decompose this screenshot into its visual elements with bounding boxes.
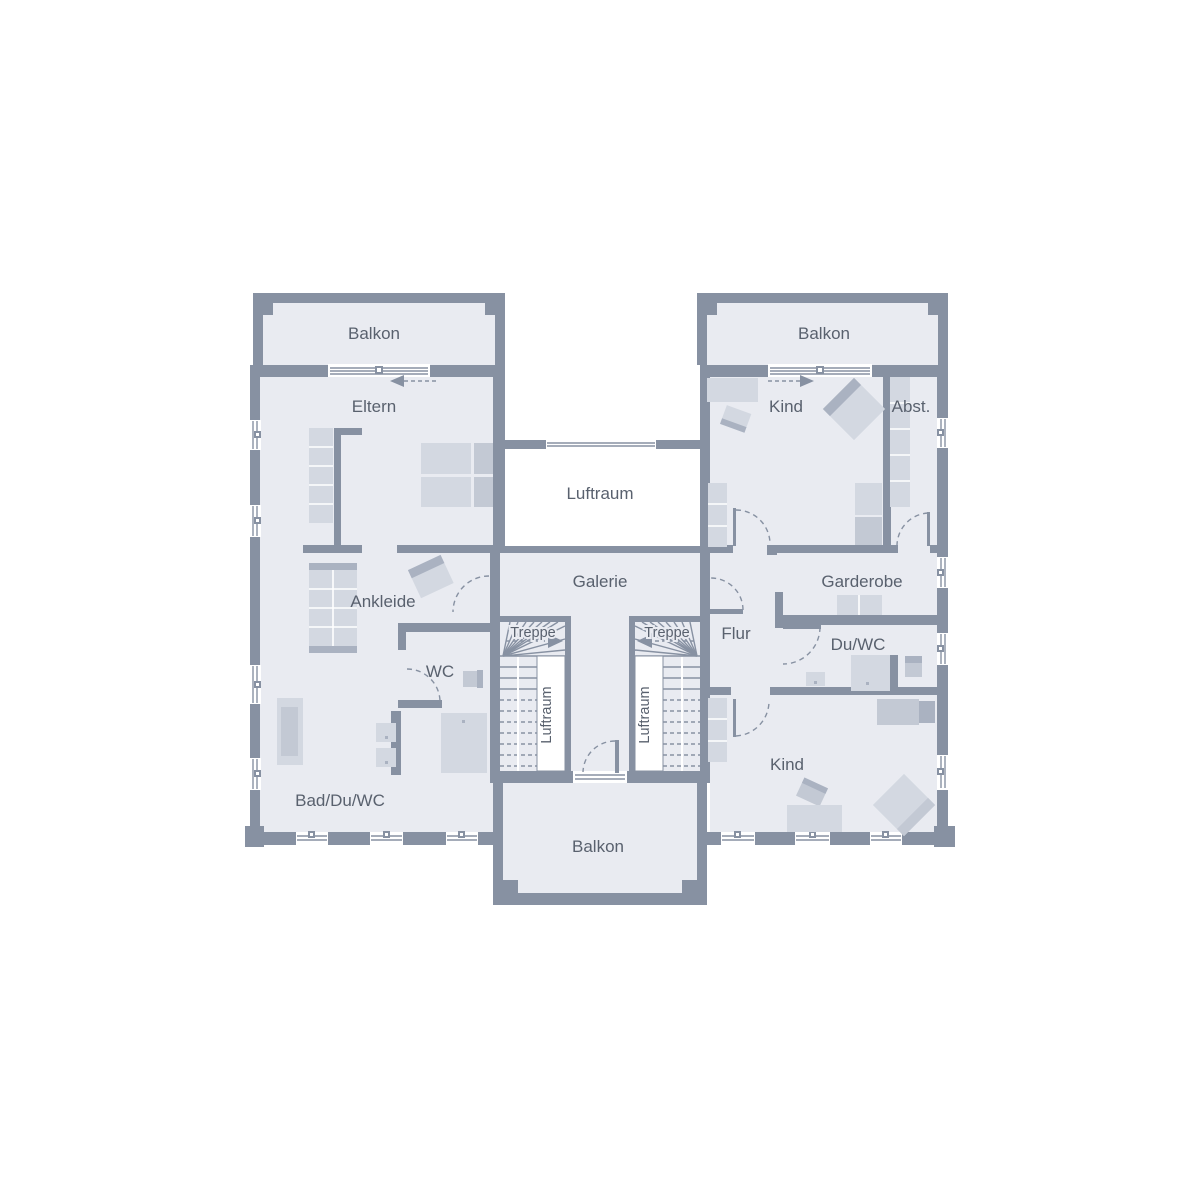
wardrobe-eltern xyxy=(309,428,333,523)
balcony-door-top-right xyxy=(768,364,872,377)
label-du-wc: Du/WC xyxy=(831,635,886,654)
desk-kind-top xyxy=(707,378,758,402)
shelf-kind-top xyxy=(708,483,727,547)
floor-plan-canvas: Balkon Balkon Balkon Eltern Kind Kind Ab… xyxy=(0,0,1200,1200)
floor-plan-drawing: Balkon Balkon Balkon Eltern Kind Kind Ab… xyxy=(0,0,1200,1200)
desk-kind-bottom xyxy=(787,805,842,832)
shower-duwc xyxy=(851,655,890,691)
door-hinge-abst xyxy=(927,512,930,546)
door-hinge-kind-bottom xyxy=(733,699,736,737)
bottom-wall-windows-right xyxy=(721,831,902,845)
door-leaf-duwc xyxy=(783,625,821,629)
toilet-wc xyxy=(463,670,483,688)
label-bad-du-wc: Bad/Du/WC xyxy=(295,791,385,810)
closet-kind-bottom xyxy=(708,698,727,762)
label-garderobe: Garderobe xyxy=(821,572,902,591)
door-leaf-flur xyxy=(710,609,743,614)
shower-bad xyxy=(441,713,487,773)
label-balkon-top-right: Balkon xyxy=(798,324,850,343)
label-treppe-right: Treppe xyxy=(644,625,689,641)
label-abstellraum: Abst. xyxy=(892,397,931,416)
label-luftraum-stair-left: Luftraum xyxy=(539,686,555,743)
label-kind-top: Kind xyxy=(769,397,803,416)
bathtub xyxy=(277,698,303,765)
label-flur: Flur xyxy=(721,624,751,643)
label-ankleide: Ankleide xyxy=(350,592,415,611)
cabinet-garderobe xyxy=(837,595,882,615)
airspace-window xyxy=(546,440,656,449)
label-luftraum: Luftraum xyxy=(566,484,633,503)
label-luftraum-stair-right: Luftraum xyxy=(637,686,653,743)
label-kind-bottom: Kind xyxy=(770,755,804,774)
label-eltern: Eltern xyxy=(352,397,396,416)
balcony-door-top-left xyxy=(328,364,430,377)
bottom-wall-windows-left xyxy=(296,831,478,845)
sideboard-kind-bottom xyxy=(877,699,935,725)
label-galerie: Galerie xyxy=(573,572,628,591)
toilet-duwc xyxy=(905,656,922,677)
label-wc: WC xyxy=(426,662,454,681)
door-hinge-kind-top xyxy=(733,508,736,546)
label-balkon-top-left: Balkon xyxy=(348,324,400,343)
door-leaf-balcony-bottom xyxy=(615,740,619,773)
closet-kind-top xyxy=(855,483,882,545)
label-treppe-left: Treppe xyxy=(510,625,555,641)
sink-duwc xyxy=(806,672,825,686)
label-balkon-bottom: Balkon xyxy=(572,837,624,856)
